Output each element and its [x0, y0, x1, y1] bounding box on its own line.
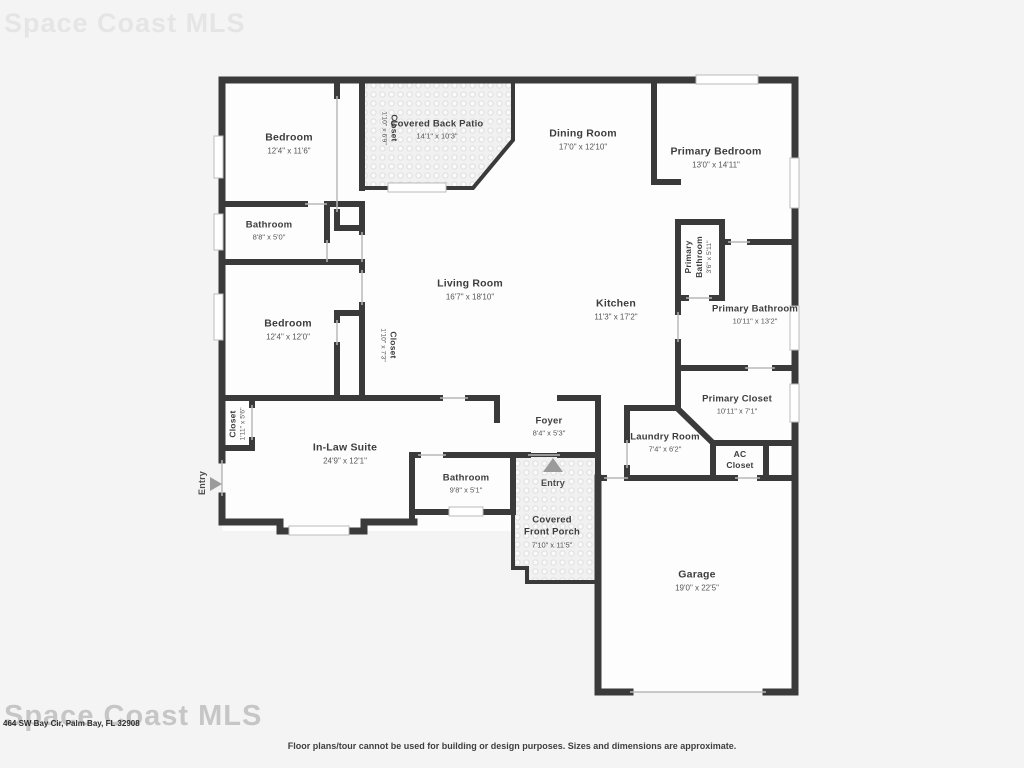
room-name: Bathroom	[443, 472, 489, 484]
room-dims: 10'11" x 13'2"	[712, 317, 798, 327]
room-dims: 12'4" x 12'0"	[264, 332, 312, 342]
room-dims: 12'4" x 11'6"	[265, 146, 313, 156]
room-name: Foyer	[533, 415, 566, 427]
room-dims: 16'7" x 18'10"	[437, 292, 503, 302]
floor-plan-page: Space Coast MLS Space Coast MLS 464 SW B…	[0, 0, 1024, 768]
room-dims: 1'11" x 5'6"	[240, 408, 249, 441]
room-label-entry-front: Entry	[541, 478, 565, 490]
room-dims: 19'0" x 22'5"	[675, 583, 719, 593]
room-dims: 7'10" x 11'5"	[524, 540, 580, 550]
entry-left-arrow-icon	[210, 477, 222, 491]
room-dims: 9'8" x 5'1"	[443, 486, 489, 496]
room-name: Primary Bathroom	[683, 236, 705, 278]
room-name: Primary Closet	[702, 393, 772, 405]
room-dims: 8'8" x 5'0"	[246, 233, 292, 243]
room-name: Closet	[228, 408, 239, 441]
room-name: Living Room	[437, 277, 503, 291]
room-name: Covered Front Porch	[524, 514, 580, 539]
room-name: Bathroom	[246, 219, 292, 231]
room-label-primary-closet: Primary Closet 10'11" x 7'1"	[702, 393, 772, 416]
room-dims: 10'11" x 7'1"	[702, 407, 772, 417]
room-name: Kitchen	[594, 297, 637, 311]
room-label-ac-closet: AC Closet	[726, 449, 753, 471]
room-name: Covered Back Patio	[391, 118, 484, 130]
room-name: Primary Bathroom	[712, 303, 798, 315]
room-label-entry-left: Entry	[197, 471, 209, 495]
room-label-living-room: Living Room 16'7" x 18'10"	[437, 277, 503, 302]
room-label-garage: Garage 19'0" x 22'5"	[675, 568, 719, 593]
room-name: Entry	[197, 471, 209, 495]
room-label-primary-bathroom: Primary Bathroom 10'11" x 13'2"	[712, 303, 798, 326]
room-label-covered-back-patio: Covered Back Patio 14'1" x 10'3"	[391, 118, 484, 141]
room-label-bedroom-1: Bedroom 12'4" x 11'6"	[265, 131, 313, 156]
room-name: Bedroom	[265, 131, 313, 145]
room-name: Closet	[387, 328, 398, 362]
room-label-primary-bedroom: Primary Bedroom 13'0" x 14'11"	[670, 145, 761, 170]
room-label-bathroom-2: Bathroom 9'8" x 5'1"	[443, 472, 489, 495]
room-dims: 17'0" x 12'10"	[549, 142, 617, 152]
room-name: Entry	[541, 478, 565, 490]
room-label-primary-bathroom-small: Primary Bathroom 3'6" x 5'11"	[683, 236, 715, 278]
room-label-closet-2: Closet 1'10" x 7'3"	[378, 328, 399, 362]
room-label-kitchen: Kitchen 11'3" x 17'2"	[594, 297, 637, 322]
room-dims: 7'4" x 6'2"	[630, 445, 699, 455]
room-label-bedroom-2: Bedroom 12'4" x 12'0"	[264, 317, 312, 342]
room-dims: 1'10" x 7'3"	[378, 328, 387, 362]
room-dims: 14'1" x 10'3"	[391, 132, 484, 142]
floor-fill	[222, 80, 795, 692]
room-label-in-law-suite: In-Law Suite 24'9" x 12'1"	[313, 441, 377, 466]
room-dims: 8'4" x 5'3"	[533, 429, 566, 439]
room-name: AC Closet	[726, 449, 753, 471]
room-name: Dining Room	[549, 127, 617, 141]
room-dims: 13'0" x 14'11"	[670, 160, 761, 170]
room-label-covered-front-porch: Covered Front Porch 7'10" x 11'5"	[524, 514, 580, 549]
room-label-bathroom-1: Bathroom 8'8" x 5'0"	[246, 219, 292, 242]
room-dims: 1'10" x 6'9"	[379, 111, 388, 145]
room-dims: 11'3" x 17'2"	[594, 312, 637, 322]
disclaimer-text: Floor plans/tour cannot be used for buil…	[0, 741, 1024, 751]
room-label-closet-3: Closet 1'11" x 5'6"	[228, 408, 249, 441]
room-dims: 24'9" x 12'1"	[313, 456, 377, 466]
room-name: Primary Bedroom	[670, 145, 761, 159]
room-name: Bedroom	[264, 317, 312, 331]
room-name: In-Law Suite	[313, 441, 377, 455]
address-line: 464 SW Bay Cir, Palm Bay, FL 32908	[3, 719, 140, 728]
room-name: Garage	[675, 568, 719, 582]
room-label-foyer: Foyer 8'4" x 5'3"	[533, 415, 566, 438]
room-label-dining-room: Dining Room 17'0" x 12'10"	[549, 127, 617, 152]
room-label-laundry-room: Laundry Room 7'4" x 6'2"	[630, 431, 699, 454]
room-name: Laundry Room	[630, 431, 699, 443]
room-dims: 3'6" x 5'11"	[706, 236, 715, 278]
floor-plan-drawing	[0, 0, 1024, 768]
